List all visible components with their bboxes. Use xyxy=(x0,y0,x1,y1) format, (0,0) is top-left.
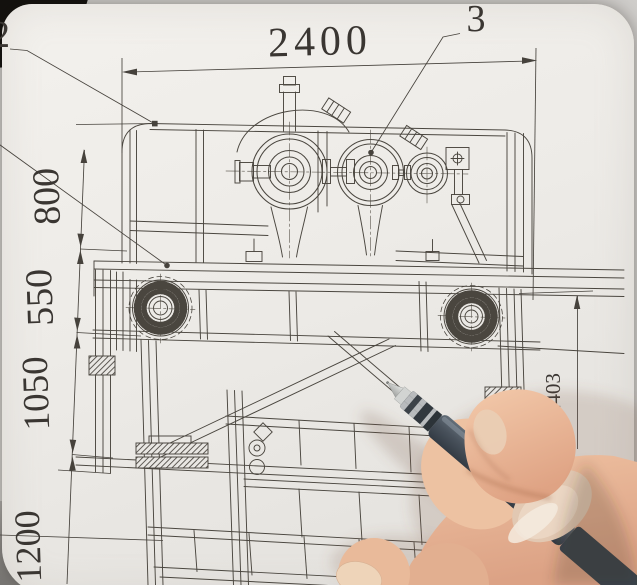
dim-2400-label: 2400 xyxy=(267,18,372,67)
technical-drawing-photo: 2400 2 3 800 550 1050 1200 1403 xyxy=(0,0,637,585)
callout-2-label: 2 xyxy=(0,14,10,56)
dim-1050-label: 1050 xyxy=(15,356,59,431)
callout-3-label: 3 xyxy=(467,0,486,40)
gear-train xyxy=(252,134,448,209)
dim-1200-label: 1200 xyxy=(7,510,49,583)
photo-canvas: 2400 2 3 800 550 1050 1200 1403 xyxy=(0,0,637,585)
dim-550-label: 550 xyxy=(18,268,62,326)
dim-800-label: 800 xyxy=(25,167,69,225)
